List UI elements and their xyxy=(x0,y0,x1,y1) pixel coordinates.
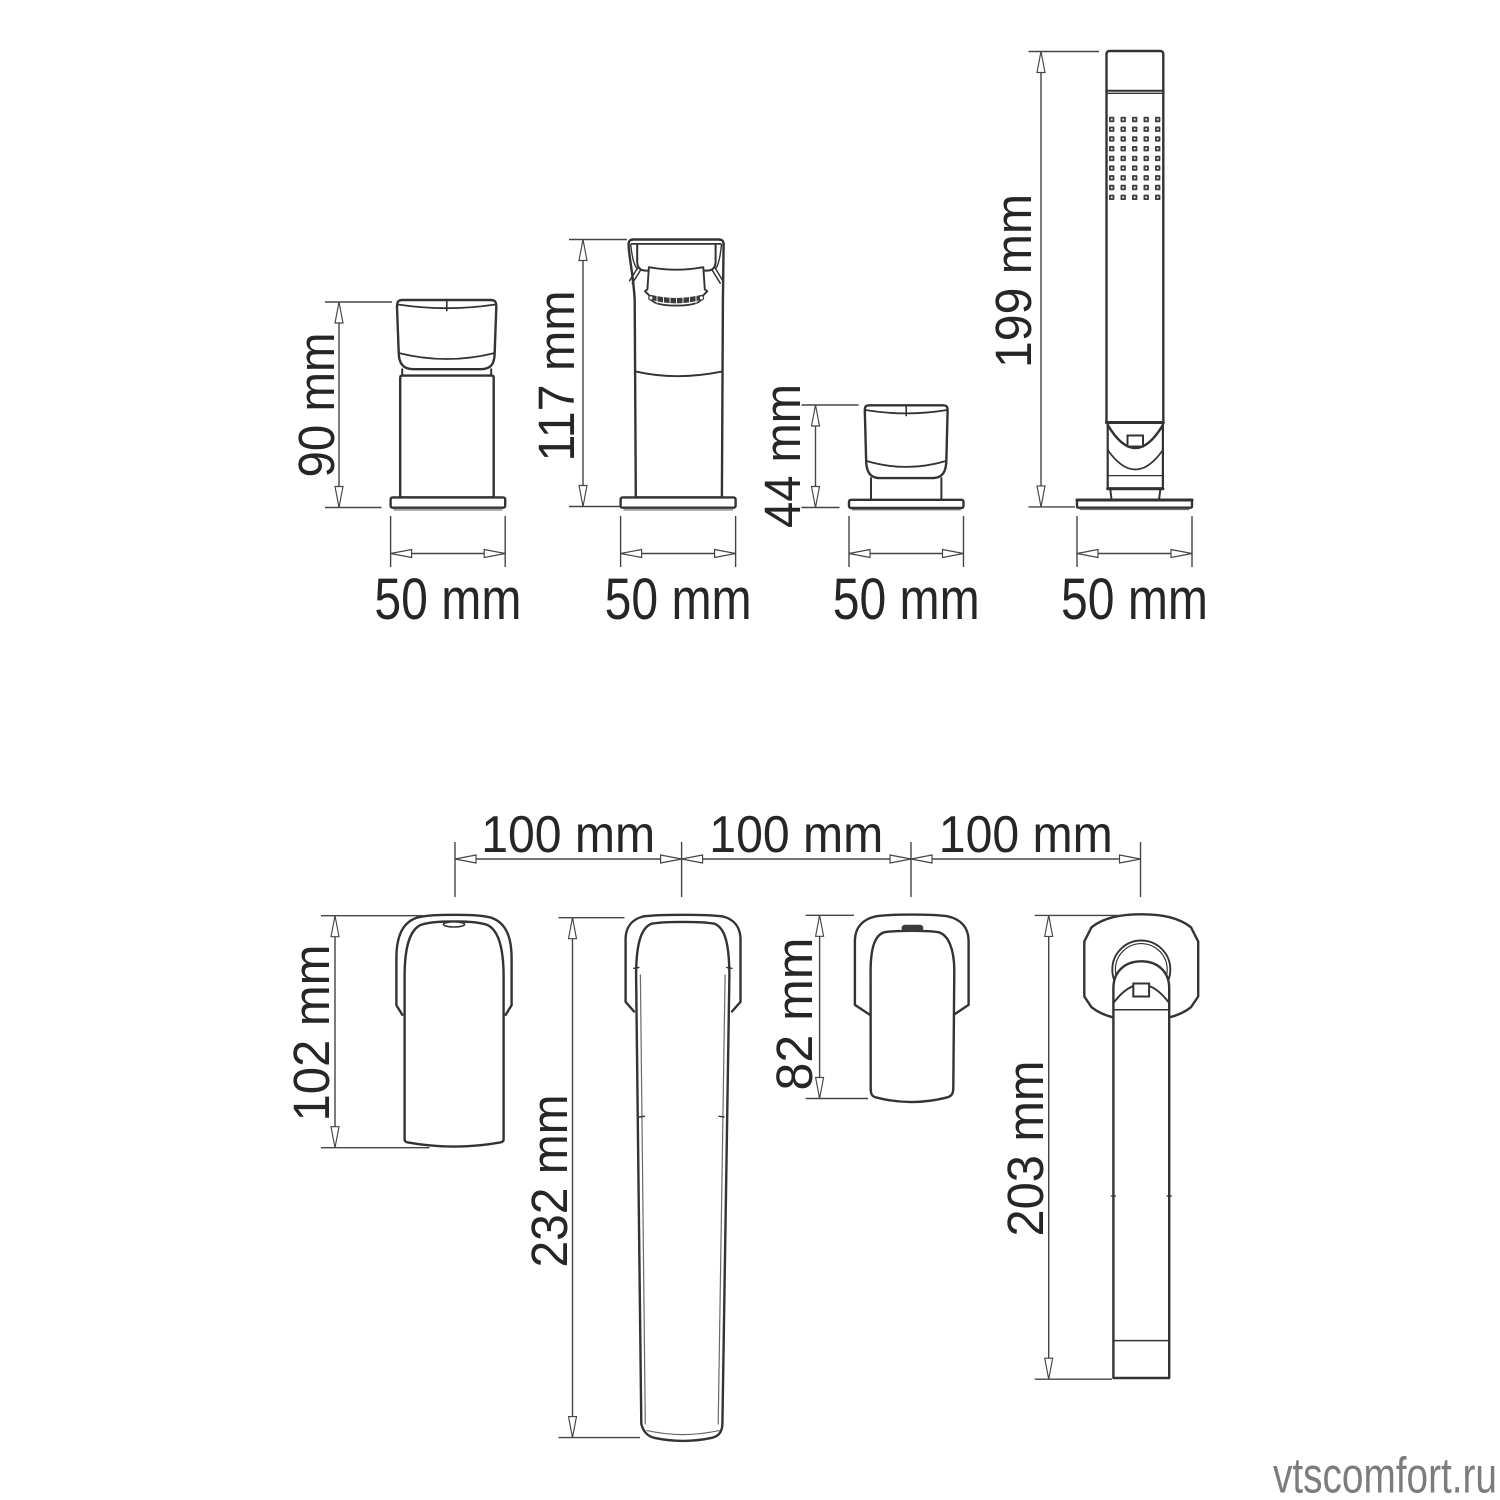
svg-text:100 mm: 100 mm xyxy=(709,806,883,864)
svg-text:50 mm: 50 mm xyxy=(833,567,980,632)
svg-text:50 mm: 50 mm xyxy=(374,567,521,632)
svg-text:102 mm: 102 mm xyxy=(283,945,340,1122)
svg-text:203 mm: 203 mm xyxy=(997,1061,1054,1237)
svg-text:199 mm: 199 mm xyxy=(985,194,1042,368)
svg-text:232 mm: 232 mm xyxy=(521,1095,578,1268)
svg-text:100 mm: 100 mm xyxy=(481,806,655,864)
svg-text:100 mm: 100 mm xyxy=(939,806,1113,864)
svg-text:vtscomfort.ru: vtscomfort.ru xyxy=(1273,1448,1497,1500)
svg-text:117 mm: 117 mm xyxy=(528,291,585,462)
svg-text:50 mm: 50 mm xyxy=(1061,567,1208,632)
svg-text:82 mm: 82 mm xyxy=(766,938,823,1091)
svg-text:44 mm: 44 mm xyxy=(754,384,811,528)
svg-text:50 mm: 50 mm xyxy=(605,567,752,632)
svg-text:90 mm: 90 mm xyxy=(288,333,345,478)
